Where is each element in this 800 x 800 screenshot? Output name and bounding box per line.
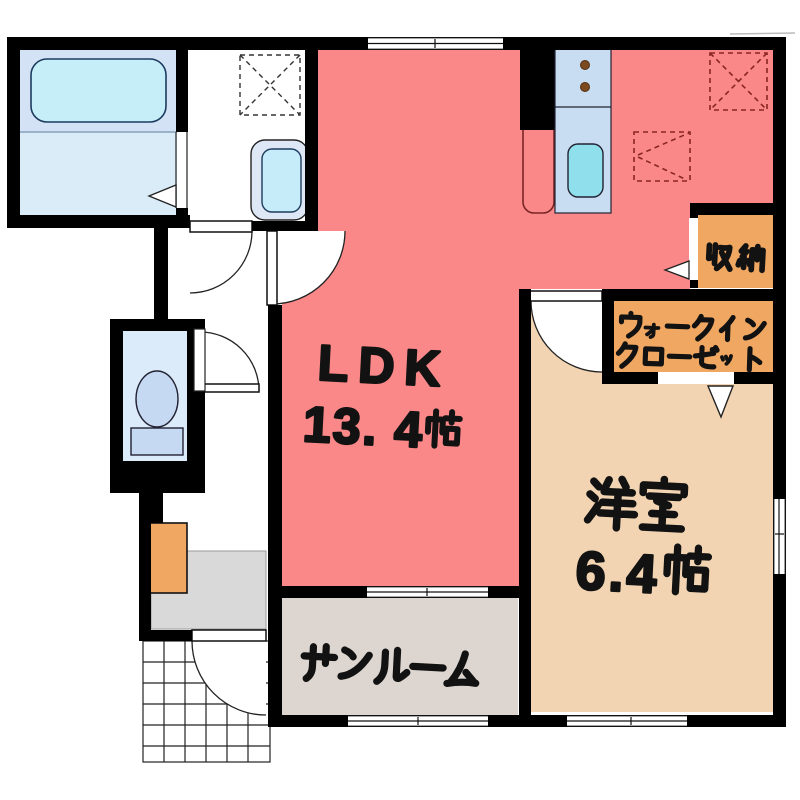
svg-text:LDK: LDK (317, 335, 453, 398)
svg-text:6.4: 6.4 (574, 541, 661, 605)
svg-text:13. 4: 13. 4 (302, 396, 426, 458)
